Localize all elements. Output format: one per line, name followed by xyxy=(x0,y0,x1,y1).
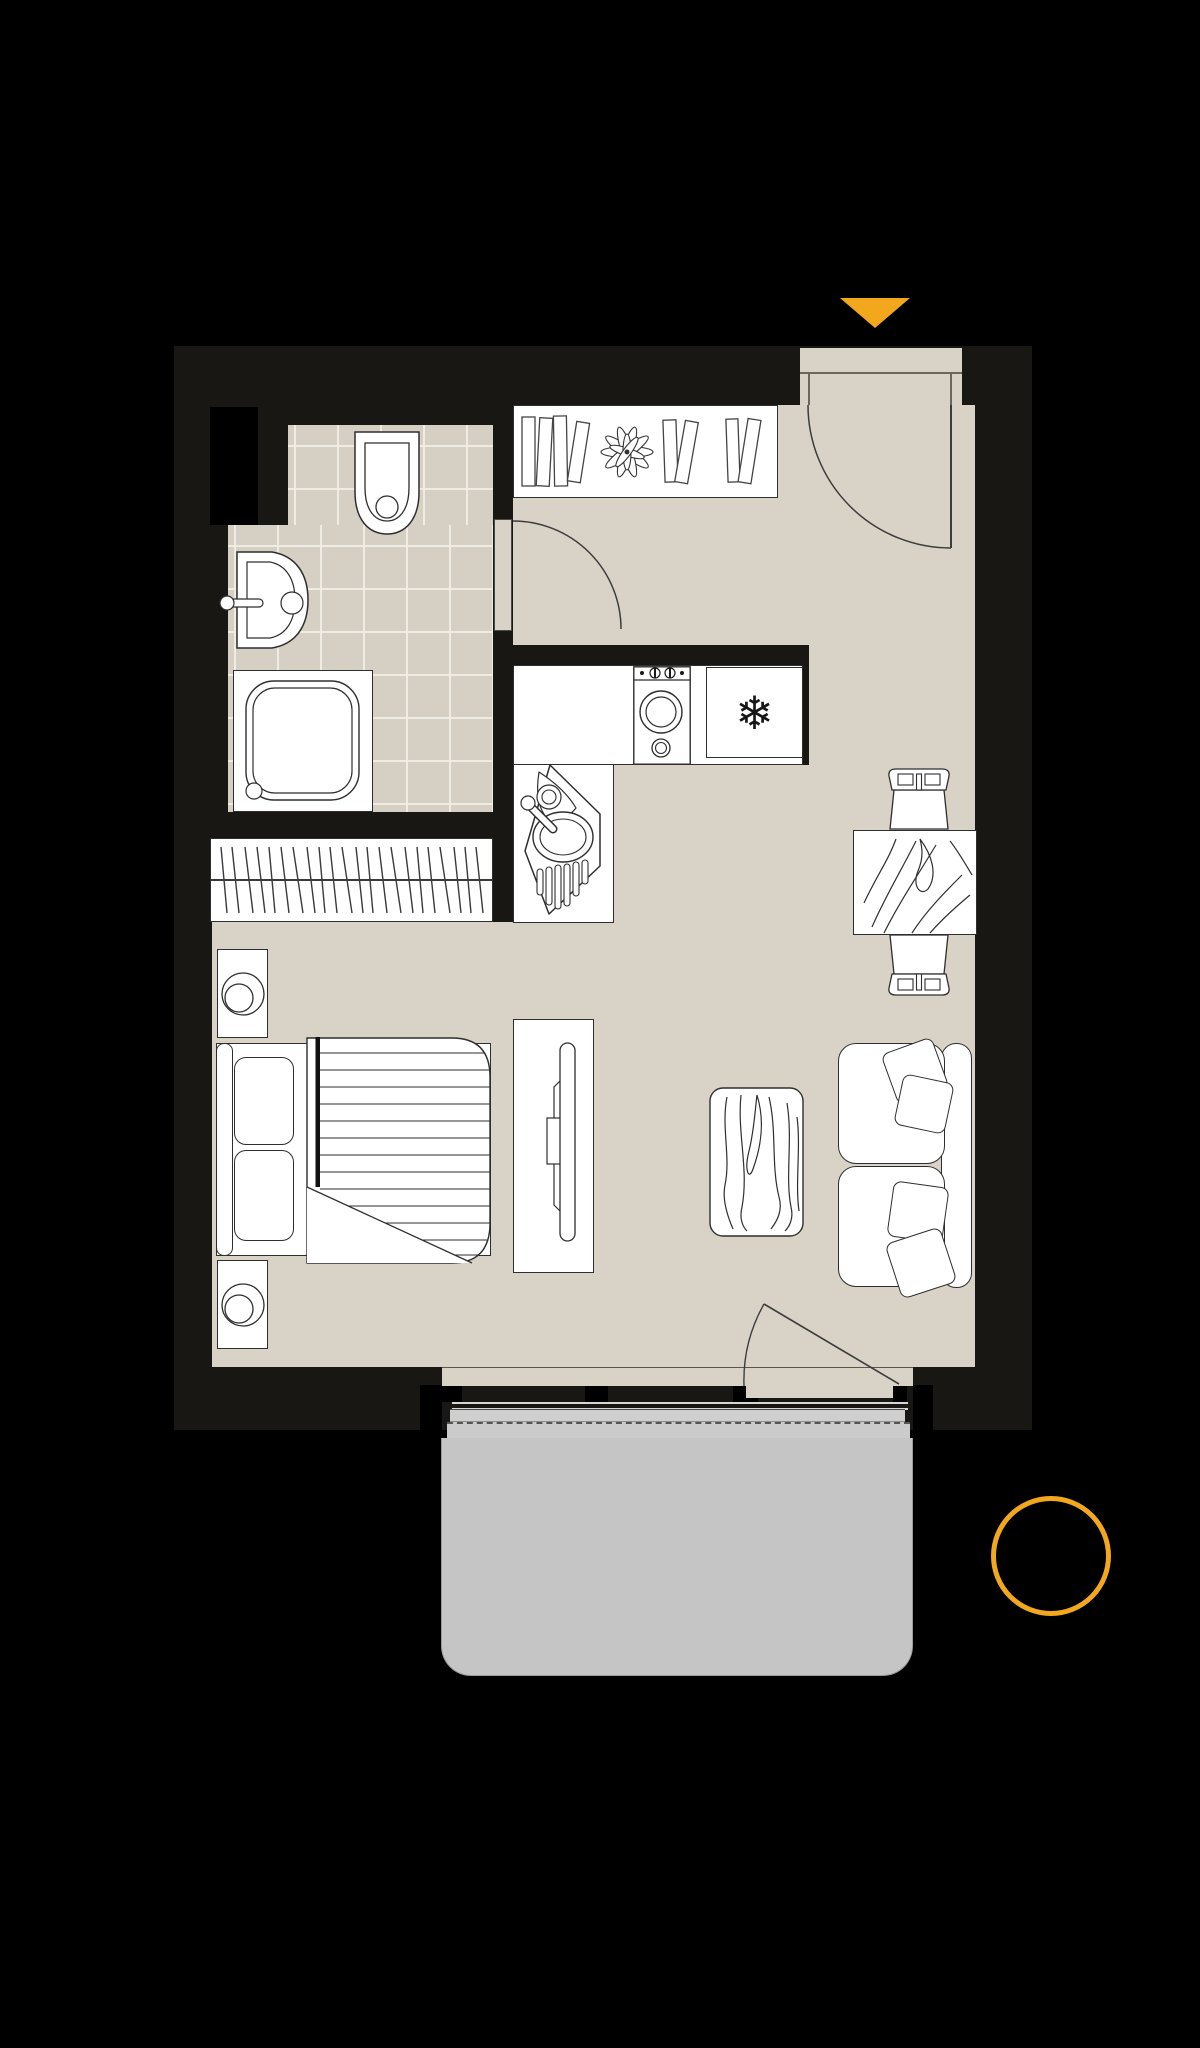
bed-duvet xyxy=(307,1037,491,1264)
table-lamp-icon xyxy=(218,1261,267,1348)
nightstand-bottom xyxy=(217,1260,268,1349)
table-lamp-icon xyxy=(218,950,267,1037)
dining-table xyxy=(853,830,977,935)
window-pier xyxy=(440,1386,462,1402)
duvet-edge-band xyxy=(316,1037,321,1187)
bed-pillow xyxy=(234,1150,294,1241)
balcony-threshold-band xyxy=(447,1422,910,1438)
balcony-door xyxy=(730,1290,910,1400)
entrance-arrow-icon xyxy=(840,298,910,328)
kitchen-wall-band xyxy=(513,645,809,665)
bed-headboard xyxy=(216,1043,233,1256)
dining-chair-bottom xyxy=(886,935,952,998)
plant-icon xyxy=(601,426,653,479)
washing-machine xyxy=(633,666,691,765)
toilet xyxy=(352,430,422,540)
window-pier xyxy=(585,1386,608,1402)
book xyxy=(522,417,535,486)
entrance-door xyxy=(780,340,980,560)
nightstand-top xyxy=(217,949,268,1038)
bed-pillow xyxy=(234,1057,294,1145)
washbasin xyxy=(222,548,322,652)
wardrobe xyxy=(210,838,493,922)
kitchen-wall-stub xyxy=(803,645,809,765)
balcony-slab xyxy=(441,1438,913,1676)
floor-plan-canvas: ❄ xyxy=(0,0,1200,2048)
tv-screen xyxy=(560,1043,575,1241)
toilet-drain-icon xyxy=(376,496,398,518)
rug xyxy=(709,1087,804,1237)
shower-tray xyxy=(233,670,373,812)
kitchen-sink xyxy=(513,665,614,923)
bookshelf xyxy=(513,405,778,498)
tv xyxy=(514,1020,593,1272)
balcony-pier-right xyxy=(913,1385,933,1438)
shower-drain-icon xyxy=(246,783,262,799)
balcony-door-leaf xyxy=(764,1304,899,1384)
balcony-rail-band xyxy=(450,1409,905,1422)
balcony-door-swing-arc xyxy=(744,1304,764,1386)
table-woodgrain xyxy=(854,831,976,934)
highlight-circle-icon xyxy=(991,1496,1111,1616)
wardrobe-hatch xyxy=(211,839,492,921)
refrigerator: ❄ xyxy=(706,667,803,758)
tv-mount xyxy=(547,1118,561,1164)
basin-drain-icon xyxy=(281,592,303,614)
service-shaft xyxy=(210,407,258,525)
throw-pillow xyxy=(893,1073,955,1135)
bathroom-door-swing xyxy=(480,500,640,640)
snowflake-icon: ❄ xyxy=(735,690,774,736)
balcony-pier-left xyxy=(420,1385,442,1438)
entrance-door-swing-arc xyxy=(808,405,951,548)
dining-chair-top xyxy=(886,766,952,831)
tv-console xyxy=(513,1019,594,1273)
